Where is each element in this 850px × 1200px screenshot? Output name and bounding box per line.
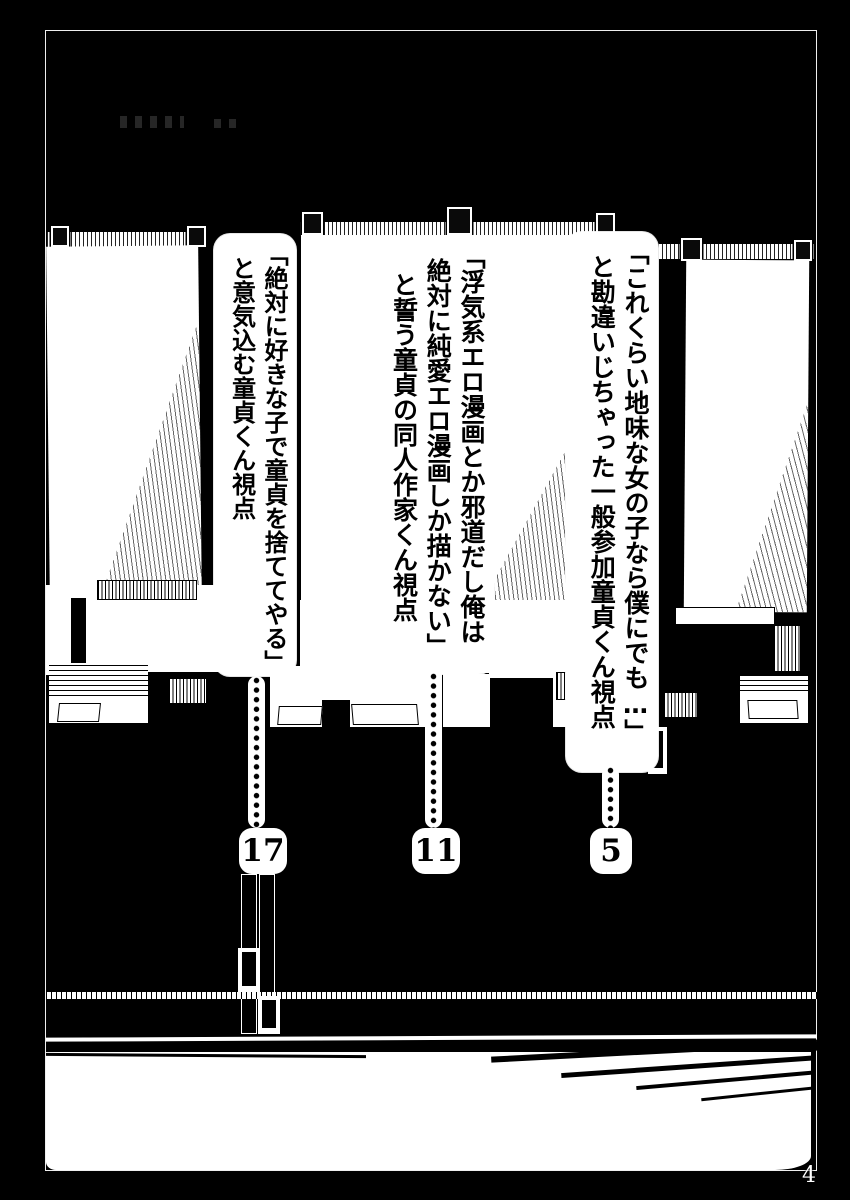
toc-dot-leader: [602, 766, 619, 828]
banner-rail-right: [650, 243, 814, 260]
shelf-bar-right: [675, 607, 775, 625]
toc-dot-leader: [425, 672, 442, 828]
toc-entry-title: 「浮気系エロ漫画とか邪道だし俺は 絶対に純愛エロ漫画しか描かない」 と誓う童貞の…: [378, 236, 494, 674]
floor-streak: [701, 1086, 811, 1102]
monitor-screen: [490, 678, 553, 727]
book-stack: [49, 663, 148, 701]
toc-line: と意気込む童貞くん視点: [225, 256, 257, 668]
table-leg: [238, 948, 260, 992]
hatch-box: [168, 678, 207, 704]
toc-dot-leader: [248, 676, 265, 828]
table-gap: [322, 700, 350, 727]
smudge-mark: [214, 119, 242, 128]
toc-line: と誓う童貞の同人作家くん視点: [387, 272, 421, 666]
booth-pole: [71, 598, 86, 666]
page-number: 4: [802, 1163, 816, 1188]
rail-clamp: [794, 240, 812, 261]
hatch-panel: [773, 625, 801, 672]
hanging-banner-right: [684, 260, 809, 613]
rail-clamp: [596, 213, 615, 234]
toc-page-number: 5: [590, 828, 632, 874]
toc-line: 「浮気系エロ漫画とか邪道だし俺は: [454, 244, 488, 666]
box-front: [277, 706, 323, 725]
toc-line: 「これくらい地味な女の子なら僕にでも…」: [618, 240, 652, 764]
rail-clamp: [681, 238, 702, 261]
box-front: [747, 700, 798, 719]
toc-entry-title: 「これくらい地味な女の子なら僕にでも…」 と勘違いじちゃった一般参加童貞くん視点: [566, 232, 658, 772]
toc-line: と勘違いじちゃった一般参加童貞くん視点: [585, 254, 619, 764]
banner-hem-hatch: [97, 580, 197, 600]
book-stack: [740, 676, 808, 696]
rail-clamp: [51, 226, 69, 247]
tablecloth-edge: [46, 992, 817, 999]
toc-page-number: 11: [412, 828, 460, 874]
hatch-box: [663, 692, 698, 718]
floor: [46, 1052, 811, 1170]
rail-clamp: [302, 212, 323, 235]
box-front: [57, 703, 101, 722]
toc-line: 絶対に純愛エロ漫画しか描かない」: [421, 258, 455, 666]
toc-page-number: 17: [239, 828, 287, 874]
table-leg: [258, 996, 280, 1034]
box-front: [351, 704, 419, 725]
toc-entry-title: 「絶対に好きな子で童貞を捨ててやる」 と意気込む童貞くん視点: [214, 234, 296, 676]
floor-streak: [46, 1053, 366, 1058]
hanging-banner-left: [46, 245, 202, 599]
toc-line: 「絶対に好きな子で童貞を捨ててやる」: [258, 242, 290, 668]
rail-clamp: [187, 226, 206, 247]
manga-page: 4 「これくらい地味な女の子なら僕にでも…」 と勘違いじちゃった一般参加童貞くん…: [0, 0, 850, 1200]
floor-streak: [636, 1070, 811, 1090]
rail-clamp: [447, 207, 472, 235]
smudge-mark: [120, 116, 184, 128]
